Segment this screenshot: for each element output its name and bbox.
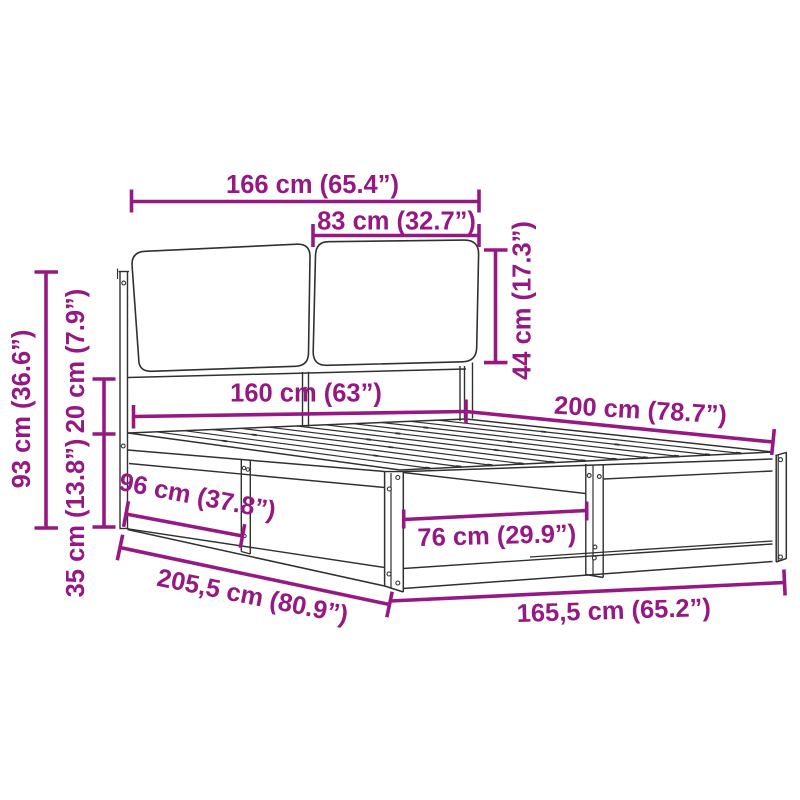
svg-text:35 cm (13.8”): 35 cm (13.8”) (62, 439, 90, 598)
svg-text:44 cm (17.3”): 44 cm (17.3”) (509, 221, 537, 380)
svg-text:20 cm (7.9”): 20 cm (7.9”) (62, 289, 90, 434)
svg-text:93 cm (36.6”): 93 cm (36.6”) (8, 330, 36, 489)
svg-text:83 cm (32.7”): 83 cm (32.7”) (317, 208, 476, 236)
svg-text:160 cm (63”): 160 cm (63”) (230, 380, 382, 408)
svg-text:166 cm (65.4”): 166 cm (65.4”) (226, 171, 399, 199)
svg-text:76 cm (29.9”): 76 cm (29.9”) (417, 520, 576, 552)
svg-text:165,5 cm (65.2”): 165,5 cm (65.2”) (516, 594, 711, 628)
